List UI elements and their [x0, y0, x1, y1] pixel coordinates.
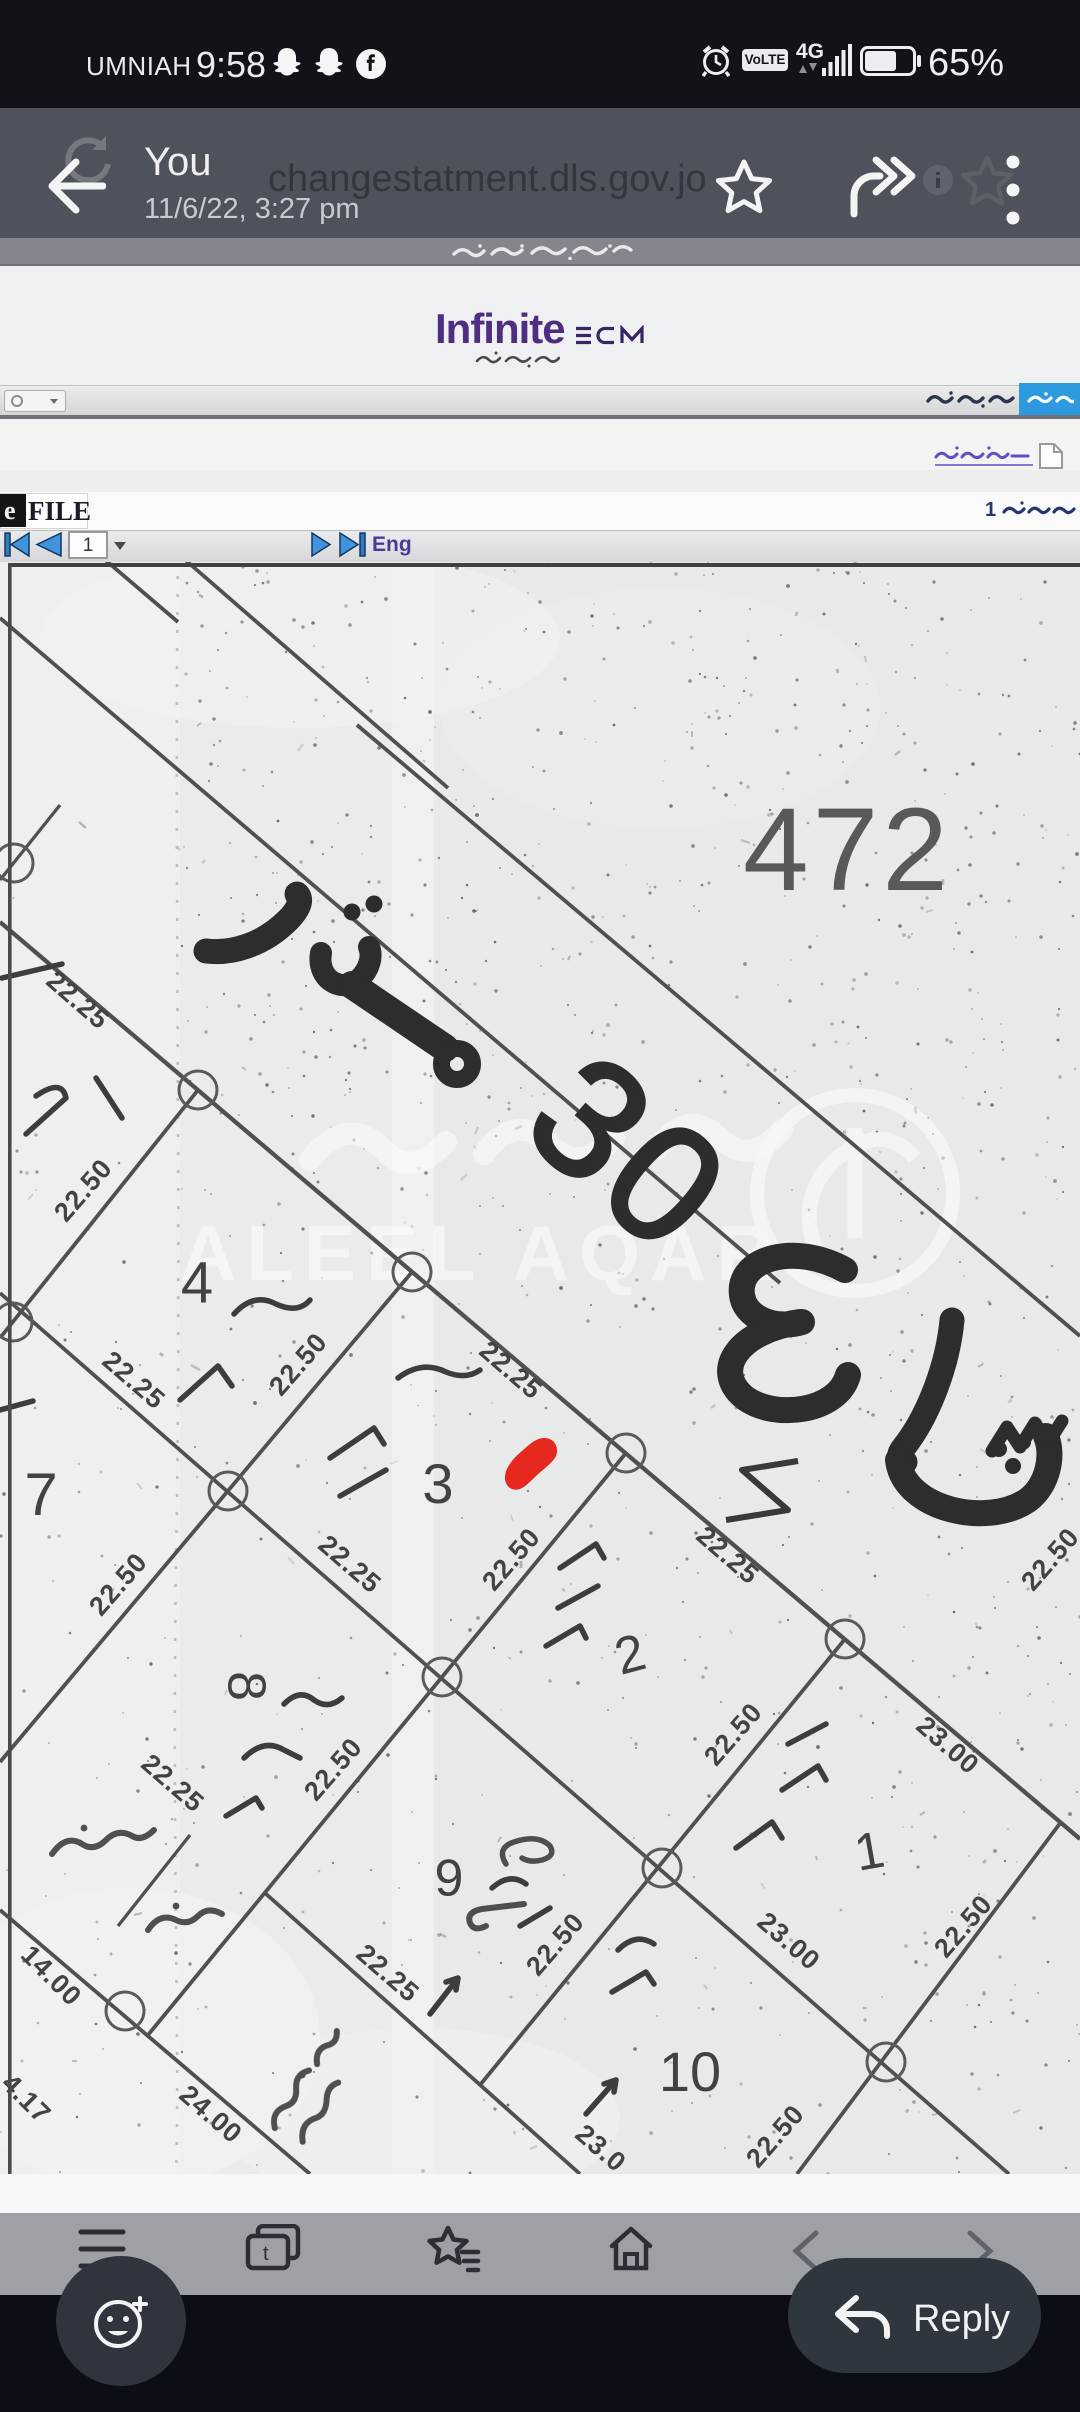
svg-text:7: 7: [24, 1461, 57, 1528]
svg-text:10: 10: [659, 2040, 721, 2103]
svg-text:9: 9: [435, 1850, 464, 1908]
svg-text:8: 8: [217, 1671, 277, 1701]
svg-text:3: 3: [422, 1452, 453, 1515]
svg-text:4: 4: [181, 1250, 213, 1315]
svg-text:t: t: [263, 2243, 269, 2265]
svg-text:472: 472: [743, 784, 952, 916]
